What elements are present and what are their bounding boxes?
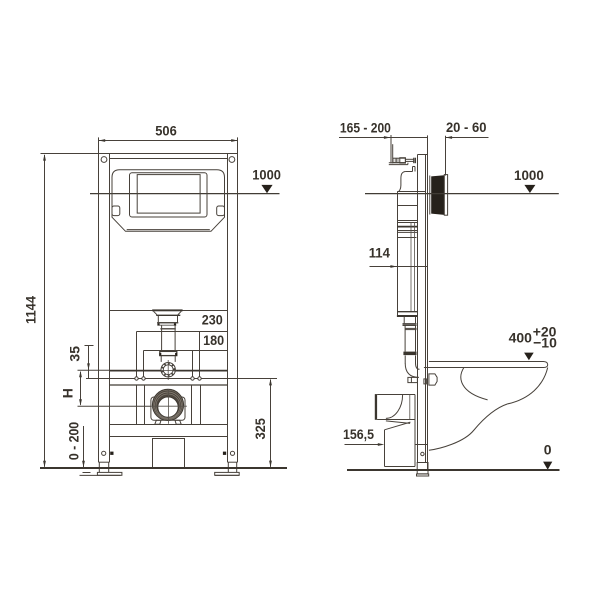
svg-text:114: 114 <box>369 244 390 260</box>
svg-text:400: 400 <box>509 329 533 345</box>
svg-text:1144: 1144 <box>23 296 39 324</box>
svg-text:325: 325 <box>252 418 268 440</box>
svg-text:506: 506 <box>155 123 177 139</box>
svg-text:0: 0 <box>544 441 552 457</box>
svg-text:1000: 1000 <box>252 166 281 182</box>
svg-text:H: H <box>60 388 76 398</box>
svg-text:20 - 60: 20 - 60 <box>446 119 487 135</box>
svg-text:230: 230 <box>202 312 223 328</box>
svg-text:156,5: 156,5 <box>343 426 374 442</box>
svg-text:165 - 200: 165 - 200 <box>340 119 391 135</box>
svg-text:0 - 200: 0 - 200 <box>66 422 82 460</box>
svg-text:−10: −10 <box>533 334 557 350</box>
svg-text:1000: 1000 <box>514 167 544 183</box>
svg-text:180: 180 <box>203 332 224 348</box>
svg-text:35: 35 <box>67 346 83 362</box>
